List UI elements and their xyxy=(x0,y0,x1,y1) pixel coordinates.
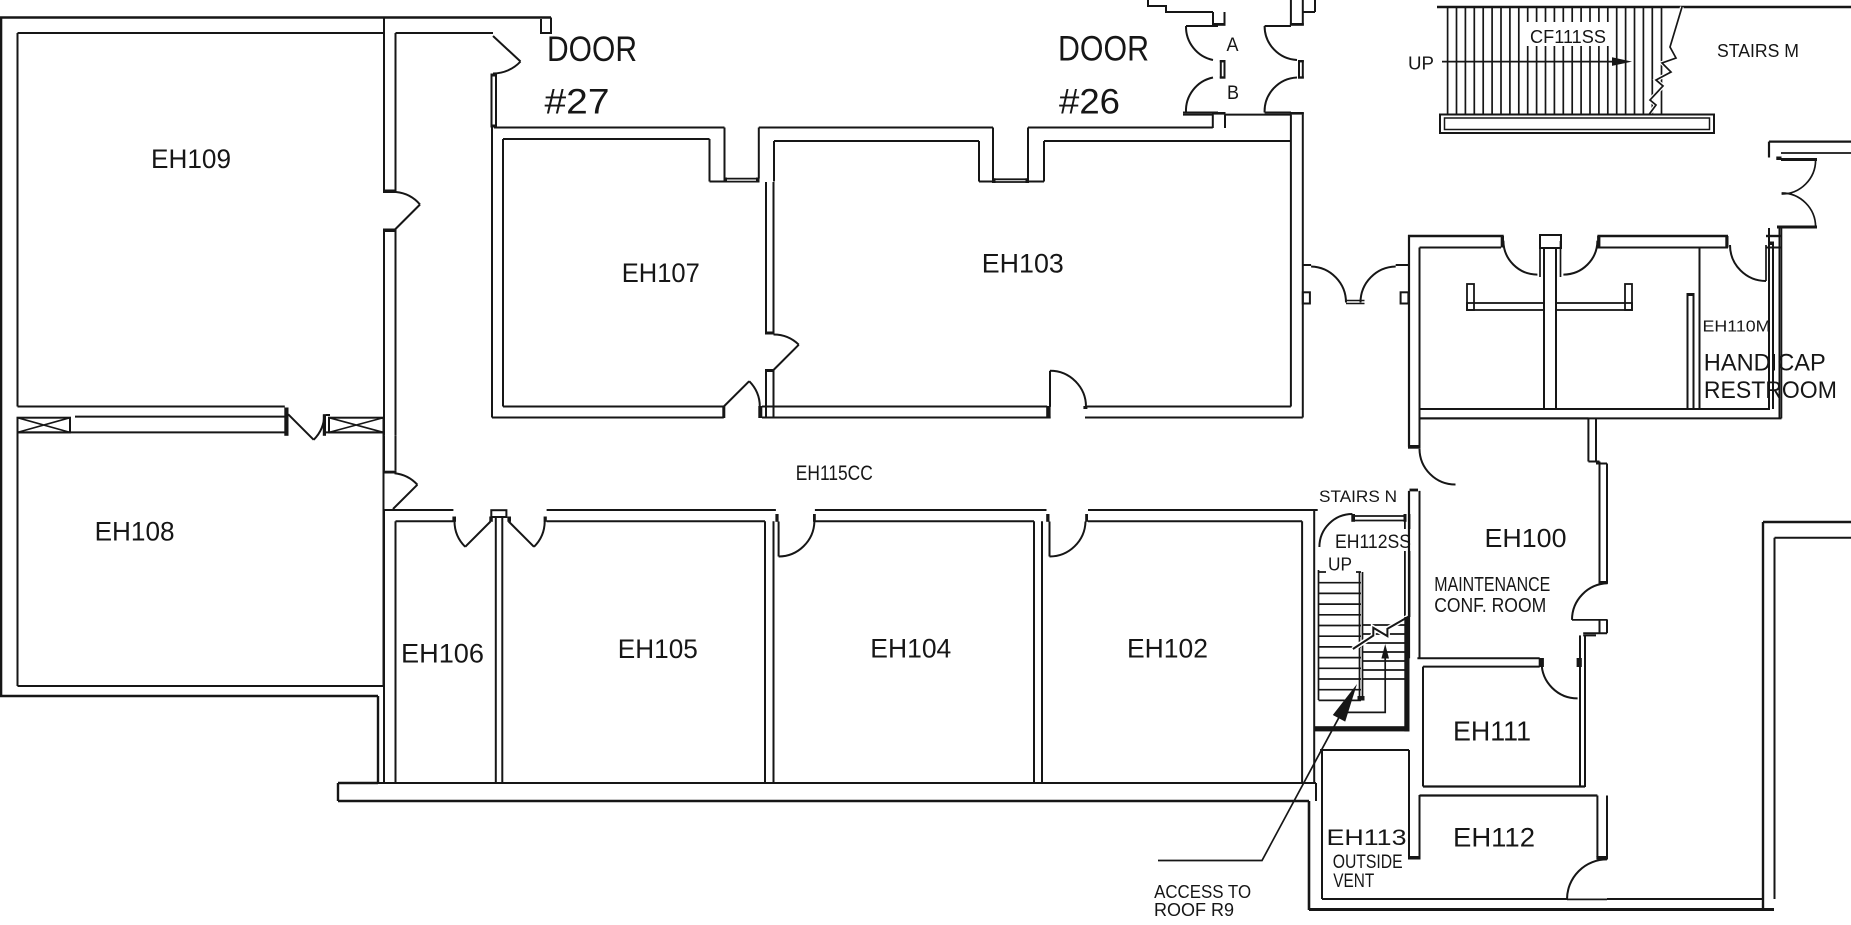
svg-text:EH105: EH105 xyxy=(618,634,698,664)
svg-text:EH112SS: EH112SS xyxy=(1335,532,1411,553)
svg-text:EH107: EH107 xyxy=(622,258,700,288)
svg-text:EH109: EH109 xyxy=(151,144,231,174)
svg-text:EH108: EH108 xyxy=(95,517,175,547)
svg-text:EH106: EH106 xyxy=(401,638,484,668)
svg-text:EH104: EH104 xyxy=(870,634,951,664)
svg-text:STAIRS M: STAIRS M xyxy=(1717,41,1799,61)
svg-text:MAINTENANCE: MAINTENANCE xyxy=(1434,574,1550,596)
svg-text:HANDICAP: HANDICAP xyxy=(1704,349,1826,376)
svg-text:EH100: EH100 xyxy=(1485,523,1567,553)
svg-text:A: A xyxy=(1227,35,1239,56)
svg-text:EH112: EH112 xyxy=(1453,823,1535,853)
svg-text:VENT: VENT xyxy=(1333,871,1374,892)
svg-text:EH103: EH103 xyxy=(982,249,1064,279)
svg-text:EH110M: EH110M xyxy=(1703,318,1771,335)
svg-text:#27: #27 xyxy=(545,83,610,122)
svg-text:OUTSIDE: OUTSIDE xyxy=(1333,852,1403,873)
svg-text:STAIRS N: STAIRS N xyxy=(1319,487,1397,506)
svg-text:EH102: EH102 xyxy=(1127,634,1208,664)
svg-text:RESTROOM: RESTROOM xyxy=(1704,377,1837,404)
svg-text:DOOR: DOOR xyxy=(1058,30,1149,69)
svg-text:EH111: EH111 xyxy=(1453,716,1531,747)
svg-text:UP: UP xyxy=(1328,554,1352,574)
svg-text:CONF. ROOM: CONF. ROOM xyxy=(1434,595,1546,617)
svg-text:UP: UP xyxy=(1408,54,1434,74)
svg-text:EH115CC: EH115CC xyxy=(796,461,873,485)
svg-text:EH113: EH113 xyxy=(1327,825,1407,850)
svg-text:ROOF R9: ROOF R9 xyxy=(1154,899,1234,920)
svg-text:CF111SS: CF111SS xyxy=(1530,27,1606,47)
svg-text:B: B xyxy=(1227,83,1239,104)
svg-text:DOOR: DOOR xyxy=(547,30,637,69)
svg-text:#26: #26 xyxy=(1059,82,1120,121)
